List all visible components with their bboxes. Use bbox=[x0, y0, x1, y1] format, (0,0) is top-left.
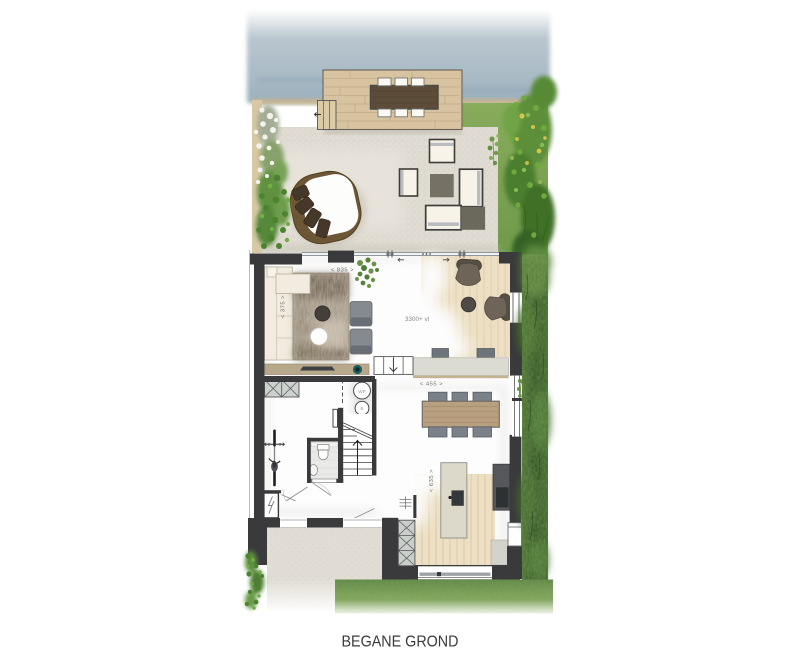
svg-text:< 635 >: < 635 > bbox=[429, 469, 435, 492]
svg-text:< 455 >: < 455 > bbox=[420, 382, 443, 388]
svg-text:WP: WP bbox=[358, 389, 366, 395]
svg-text:< 375 >: < 375 > bbox=[281, 295, 287, 318]
svg-text:< 835 >: < 835 > bbox=[331, 268, 354, 274]
svg-text:B: B bbox=[361, 406, 364, 411]
svg-text:BEGANE GROND: BEGANE GROND bbox=[342, 634, 459, 651]
svg-text:3300+ vl: 3300+ vl bbox=[405, 316, 429, 323]
